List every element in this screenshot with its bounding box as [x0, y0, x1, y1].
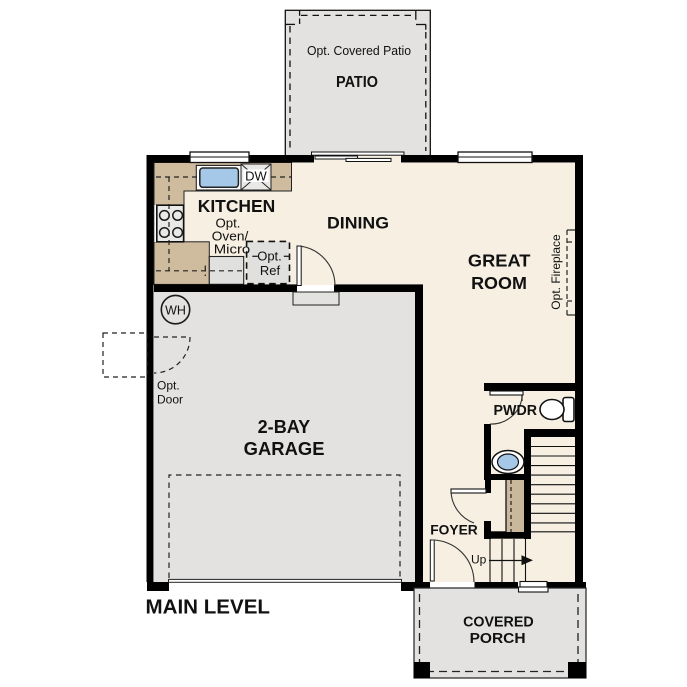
svg-text:WH: WH: [165, 304, 186, 318]
svg-text:GREAT: GREAT: [468, 251, 531, 271]
svg-text:Opt.: Opt.: [157, 379, 180, 393]
svg-text:Opt.: Opt.: [257, 248, 282, 263]
svg-text:2-BAY: 2-BAY: [258, 417, 311, 437]
svg-text:PATIO: PATIO: [336, 74, 378, 91]
svg-text:Opt. Fireplace: Opt. Fireplace: [549, 234, 563, 310]
svg-text:Opt. Covered Patio: Opt. Covered Patio: [307, 44, 411, 58]
svg-text:PWDR: PWDR: [494, 403, 538, 419]
svg-text:PORCH: PORCH: [470, 631, 526, 647]
svg-text:DINING: DINING: [327, 214, 389, 233]
svg-text:COVERED: COVERED: [463, 614, 534, 630]
svg-text:Micro: Micro: [214, 242, 251, 257]
svg-text:FOYER: FOYER: [430, 523, 478, 538]
svg-text:Up: Up: [471, 552, 487, 566]
svg-text:Door: Door: [157, 393, 183, 407]
svg-text:ROOM: ROOM: [471, 273, 527, 293]
svg-text:DW: DW: [245, 169, 267, 184]
svg-text:GARAGE: GARAGE: [244, 439, 325, 459]
svg-text:KITCHEN: KITCHEN: [198, 196, 276, 216]
svg-text:MAIN LEVEL: MAIN LEVEL: [146, 597, 271, 619]
svg-text:Ref: Ref: [260, 263, 281, 278]
